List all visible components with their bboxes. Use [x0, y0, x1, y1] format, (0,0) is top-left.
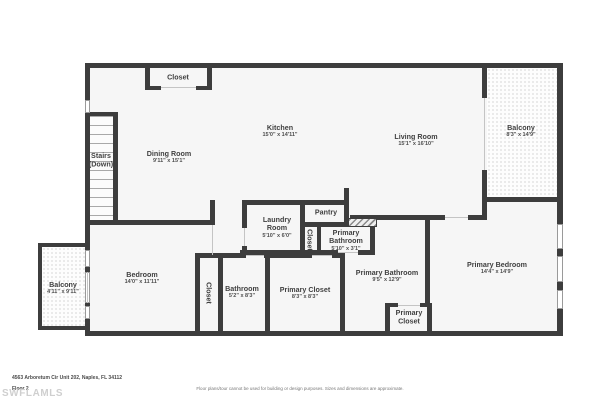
room-label-bedroom: Bedroom 14'0" x 11'11" [125, 271, 160, 286]
room-name: Pantry [315, 208, 337, 216]
room-name: Balcony [49, 281, 77, 289]
wall-segment [85, 220, 215, 225]
wall-segment [210, 200, 215, 225]
sliding-door-line [87, 272, 88, 303]
wall-segment [420, 303, 432, 307]
disclaimer-text: Floor plans/tour cannot be used for buil… [196, 386, 403, 391]
room-name: Kitchen [267, 124, 293, 132]
room-label-closet-mid: Closet [306, 229, 314, 251]
window [85, 250, 90, 267]
door-opening [246, 255, 264, 256]
wall-segment [38, 326, 85, 330]
room-name: Primary Bedroom [467, 261, 527, 269]
room-label-bathroom: Bathroom 5'2" x 8'3" [225, 285, 259, 300]
window [85, 306, 90, 319]
room-name: Bathroom [329, 237, 363, 245]
room-name: Closet [167, 73, 189, 81]
wall-segment [85, 331, 563, 336]
wall-segment [38, 243, 85, 247]
wall-segment [85, 63, 563, 68]
room-name: Room [267, 224, 287, 232]
room-label-balcony-left: Balcony 4'11" x 9'11" [47, 281, 79, 296]
room-label-living: Living Room 15'1" x 16'10" [394, 133, 437, 148]
wall-segment [300, 205, 305, 255]
wall-segment [482, 170, 487, 202]
room-label-closet-top: Closet [167, 73, 189, 81]
room-name: Primary Bathroom [356, 269, 418, 277]
room-name: Living Room [394, 133, 437, 141]
window [85, 100, 90, 113]
room-label-stairs: Stairs (Down) [89, 152, 113, 169]
room-name: Stairs [91, 152, 111, 160]
wall-segment [385, 303, 398, 307]
wall-segment [305, 200, 349, 205]
room-label-laundry: Laundry Room 5'10" x 6'0" [262, 215, 291, 238]
room-label-primary-bath: Primary Bathroom 9'5" x 12'9" [356, 269, 418, 284]
room-label-dining: Dining Room 9'11" x 15'1" [147, 150, 191, 165]
window [557, 290, 563, 309]
window [557, 256, 563, 282]
mls-watermark: SWFLAMLS [2, 388, 63, 399]
wall-segment [195, 253, 246, 258]
room-name: Dining Room [147, 150, 191, 158]
room-name: Closet [205, 282, 213, 304]
room-name: Closet [398, 317, 420, 325]
room-name: Primary [396, 309, 423, 317]
door-opening [212, 225, 213, 255]
room-name: Bathroom [225, 285, 259, 293]
wall-segment [195, 255, 200, 331]
room-dims: 14'0" x 11'11" [125, 279, 160, 285]
wall-segment [427, 303, 432, 331]
room-name: Primary Closet [280, 286, 330, 294]
room-dims: 8'3" x 14'9" [506, 132, 535, 138]
room-name: Bedroom [126, 271, 157, 279]
room-label-kitchen: Kitchen 15'0" x 14'11" [262, 124, 297, 139]
room-label-primary-closet: Primary Closet 8'3" x 8'3" [280, 286, 330, 301]
door-opening [312, 255, 332, 256]
room-name: Closet [306, 229, 314, 251]
room-name: Balcony [507, 124, 535, 132]
room-label-balcony-right: Balcony 8'3" x 14'9" [506, 124, 535, 139]
address-text: 4563 Arboretum Cir Unit 202, Naples, FL … [12, 375, 122, 381]
wall-segment [482, 63, 487, 98]
room-dims: 5'10" x 6'0" [262, 232, 291, 238]
room-dims: 5'10" x 3'1" [329, 245, 363, 251]
half-wall-hatched [348, 218, 377, 227]
room-dims: 9'5" x 12'9" [356, 277, 418, 283]
door-opening [445, 217, 468, 218]
door-opening [398, 305, 420, 306]
wall-segment [425, 220, 430, 303]
door-opening [161, 87, 196, 88]
room-name: Primary [333, 228, 360, 236]
room-label-closet-lower: Closet [205, 282, 213, 304]
wall-segment [145, 86, 161, 90]
room-name: Laundry [263, 215, 291, 223]
wall-segment [113, 112, 118, 225]
room-label-primary-closet-small: Primary Closet [396, 309, 423, 326]
room-dims: 5'2" x 8'3" [225, 293, 259, 299]
room-label-pantry: Pantry [315, 208, 337, 216]
wall-segment [482, 197, 563, 202]
room-dims: 15'0" x 14'11" [262, 132, 297, 138]
room-dims: 9'11" x 15'1" [147, 158, 191, 164]
wall-segment [265, 258, 270, 331]
wall-segment [38, 243, 42, 330]
wall-segment [264, 253, 312, 258]
sliding-door-line [484, 98, 485, 170]
wall-segment [218, 255, 223, 331]
room-label-primary-bedroom: Primary Bedroom 14'4" x 14'9" [467, 261, 527, 276]
door-opening [244, 228, 245, 246]
room-label-primary-bath-small: Primary Bathroom 5'10" x 3'1" [329, 228, 363, 251]
room-dims: 4'11" x 9'11" [47, 289, 79, 295]
door-opening [338, 252, 358, 253]
wall-segment [340, 258, 345, 331]
room-dims: 15'1" x 16'10" [394, 141, 437, 147]
wall-segment [242, 205, 247, 228]
room-dims: 8'3" x 8'3" [280, 294, 330, 300]
wall-segment [242, 200, 305, 205]
room-dims: 14'4" x 14'9" [467, 269, 527, 275]
wall-segment [196, 86, 212, 90]
wall-segment [385, 303, 390, 331]
floor-plan-page: { "plan": { "rooms": { "closet_top": { "… [0, 0, 600, 400]
room-name: (Down) [89, 160, 113, 168]
window [557, 224, 563, 249]
